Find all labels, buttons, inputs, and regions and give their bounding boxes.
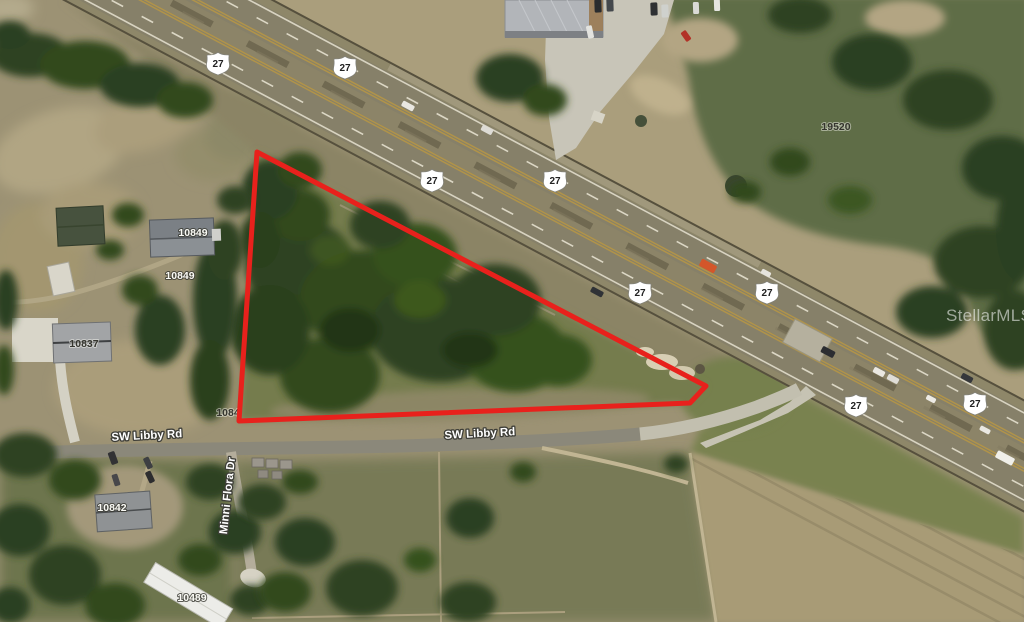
address-label: 1084 [216,407,240,419]
us-27-shield: 27 [755,281,778,304]
map-canvas: 1084910849108371084108421048919520SW Lib… [0,0,1024,622]
shield-number: 27 [969,399,981,410]
shield-number: 27 [634,288,646,299]
us-27-shield: 27 [844,394,867,417]
shield-number: 27 [549,176,561,187]
vehicle [714,0,720,11]
address-label: 10849 [178,227,207,239]
shield-number: 27 [850,401,862,412]
vehicle [693,2,699,14]
shield-number: 27 [426,176,438,187]
us-27-shield: 27 [628,281,651,304]
address-label: 10842 [97,502,126,514]
address-label: 10849 [165,270,194,282]
us-27-shield: 27 [543,169,566,192]
address-label: 19520 [821,121,850,133]
aerial-map: 1084910849108371084108421048919520SW Lib… [0,0,1024,622]
address-label: 10489 [177,592,206,604]
us-27-shield: 27 [333,56,356,79]
building-green-barn [56,206,105,246]
shield-number: 27 [212,59,224,70]
vehicle [650,2,657,15]
shield-number: 27 [761,288,773,299]
shield-number: 27 [339,63,351,74]
driveway-10837-pad [12,318,58,362]
us-27-shield: 27 [963,392,986,415]
vehicle [606,0,613,12]
vehicle [661,4,668,17]
vehicle [594,0,601,13]
watermark: StellarMLS [946,306,1024,325]
us-27-shield: 27 [206,52,229,75]
address-label: 10837 [69,338,98,350]
us-27-shield: 27 [420,169,443,192]
